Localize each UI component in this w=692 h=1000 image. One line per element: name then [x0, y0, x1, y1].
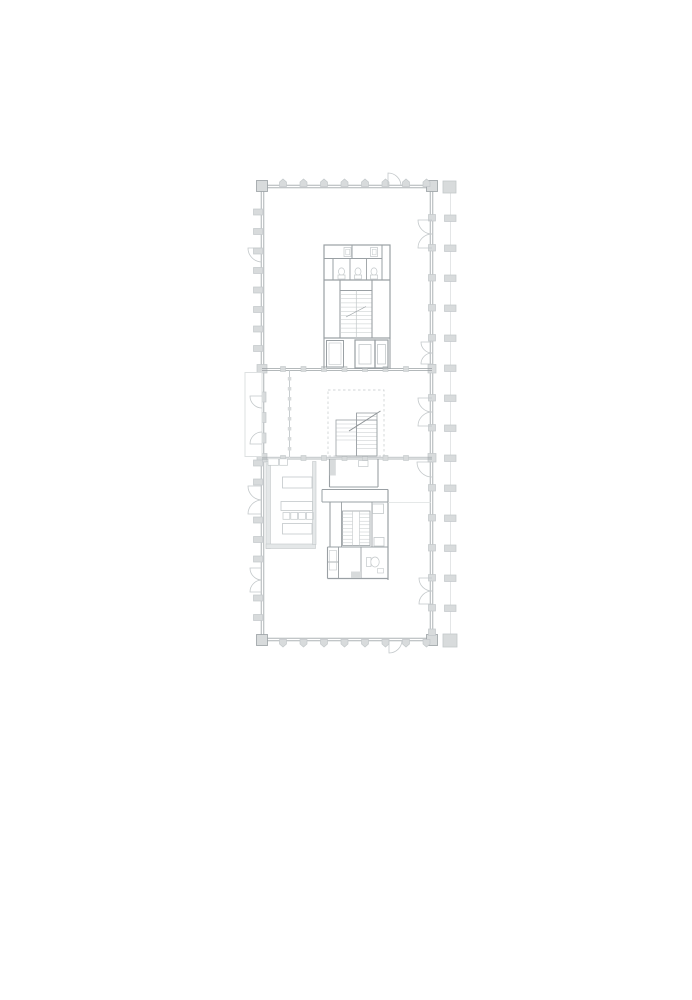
mullion-tick	[288, 447, 292, 451]
door-swing	[250, 568, 262, 580]
washbasin	[371, 248, 378, 257]
bottom-facade-column	[403, 640, 410, 648]
closet	[329, 551, 336, 571]
wall-column-tick	[301, 367, 306, 372]
left-facade-column	[254, 326, 263, 332]
door-swing	[248, 500, 262, 514]
wall-fill	[351, 572, 361, 579]
mullion-tick	[288, 427, 292, 431]
left-facade-column	[254, 479, 263, 485]
kitchen-counter	[281, 502, 313, 511]
door-swing	[250, 580, 262, 592]
right-facade-column	[429, 305, 436, 312]
wall-column-tick	[383, 367, 388, 372]
wall-fill	[330, 460, 336, 476]
right-facade-column	[429, 485, 436, 492]
top-facade-column	[280, 179, 287, 187]
bottom-facade-column	[341, 640, 348, 648]
left-facade-column	[254, 229, 263, 235]
equipment	[378, 569, 384, 574]
top-facade-column	[362, 179, 369, 187]
right-facade-column	[429, 605, 436, 612]
kitchen-appliance	[299, 513, 306, 520]
left-facade-column	[254, 248, 263, 254]
wc-toilet	[371, 557, 379, 567]
drawing-canvas	[0, 0, 692, 1000]
mullion-tick	[288, 377, 292, 381]
right-facade-column	[429, 335, 436, 342]
kitchen-wall	[266, 462, 271, 549]
left-facade-column	[254, 307, 263, 313]
wc-toilet	[371, 268, 377, 275]
washbasin	[344, 248, 351, 257]
facade-column	[445, 335, 457, 342]
top-facade-column	[403, 179, 410, 187]
wc-cistern	[355, 275, 362, 279]
door-swing	[417, 462, 432, 477]
mullion-tick	[288, 407, 292, 411]
bottom-facade-column	[362, 640, 369, 648]
kitchen-equipment	[280, 459, 288, 466]
bottom-facade-column	[300, 640, 307, 648]
elevator-car	[378, 345, 386, 365]
kitchen-appliance	[283, 513, 290, 520]
facade-column	[445, 365, 457, 372]
facade-column	[445, 275, 457, 282]
wall-column-tick	[281, 367, 286, 372]
facade-column	[445, 215, 457, 222]
bottom-facade-column	[321, 640, 328, 648]
facade-column	[445, 515, 457, 522]
left-facade-column	[254, 517, 263, 523]
wall-column-tick	[404, 367, 409, 372]
facade-column	[445, 605, 457, 612]
wall-column-tick	[404, 456, 409, 461]
right-facade-column	[429, 275, 436, 282]
right-facade-column	[429, 545, 436, 552]
left-facade-column	[254, 268, 263, 274]
left-facade-column	[254, 537, 263, 543]
left-facade-column	[254, 615, 263, 621]
wall-column-tick	[301, 456, 306, 461]
shaft	[374, 538, 384, 547]
wc-cistern	[338, 275, 345, 279]
mullion-tick	[288, 437, 292, 441]
kitchen-appliance	[291, 513, 298, 520]
top-facade-column	[341, 179, 348, 187]
corner-column	[257, 181, 268, 192]
kitchen-wall	[266, 544, 316, 549]
wc-cistern	[371, 275, 378, 279]
wc-toilet	[339, 268, 345, 275]
wc-toilet	[355, 268, 361, 275]
mullion-tick	[288, 387, 292, 391]
equipment	[359, 461, 369, 467]
facade-column-corner	[443, 181, 456, 193]
kitchen-equipment	[268, 459, 279, 466]
facade-column	[445, 575, 457, 582]
door-swing	[389, 640, 402, 653]
wc-cistern	[367, 558, 372, 567]
facade-column	[445, 305, 457, 312]
facade-column	[445, 395, 457, 402]
kitchen-island	[283, 477, 313, 488]
left-facade-column	[254, 287, 263, 293]
top-facade-column	[321, 179, 328, 187]
top-facade-column	[300, 179, 307, 187]
facade-column	[445, 425, 457, 432]
facade-column	[445, 455, 457, 462]
mullion-tick	[288, 397, 292, 401]
left-facade-column	[254, 595, 263, 601]
door-swing	[248, 486, 262, 500]
right-facade-column	[429, 425, 436, 432]
kitchen-appliance	[306, 513, 313, 520]
shaft	[373, 504, 384, 514]
left-facade-column	[254, 346, 263, 352]
left-facade-column	[254, 209, 263, 215]
left-facade-column	[254, 460, 263, 466]
right-facade-column	[429, 629, 436, 636]
corner-column	[257, 635, 268, 646]
mullion-tick	[288, 417, 292, 421]
bottom-facade-column	[280, 640, 287, 648]
door-swing	[388, 173, 401, 186]
floor-plan-svg	[0, 0, 692, 1000]
kitchen-wall	[313, 462, 317, 545]
wall-column-tick	[322, 456, 327, 461]
facade-column	[445, 245, 457, 252]
wall-junction-column	[428, 454, 436, 463]
bottom-facade-column	[382, 640, 389, 648]
facade-column	[445, 545, 457, 552]
facade-column-corner	[443, 634, 457, 647]
left-facade-column	[254, 556, 263, 562]
kitchen-island	[283, 524, 313, 535]
facade-column	[445, 485, 457, 492]
right-facade-column	[429, 515, 436, 522]
